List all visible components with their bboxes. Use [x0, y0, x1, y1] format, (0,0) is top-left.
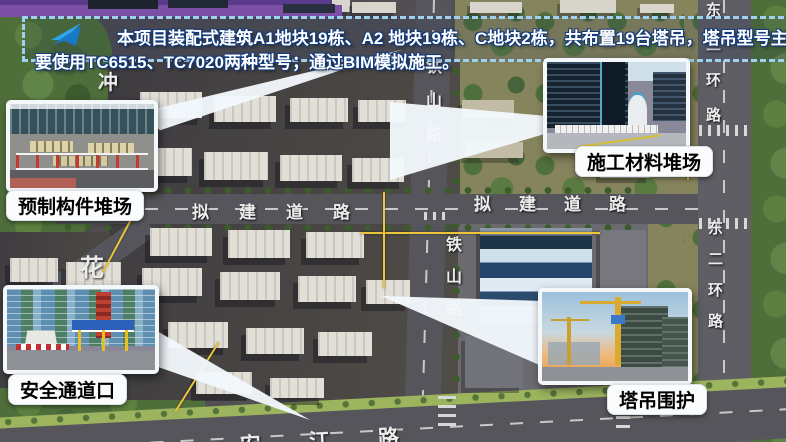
- inset-safety-gate: [3, 285, 159, 374]
- building: [228, 230, 290, 258]
- crane-ground: [542, 367, 688, 381]
- dark-block: [88, 0, 158, 9]
- crane-line: [383, 192, 385, 288]
- road-label-proposed-right: 拟建道路: [474, 190, 654, 215]
- safety-canopy-post: [125, 330, 128, 351]
- crane-cab: [611, 315, 626, 324]
- crane-building-right2: [662, 317, 688, 370]
- paper-plane-icon: [49, 22, 83, 48]
- slide-aerial-site-plan: 铁山路 铁山路 东二环路 东二环路 拟建道路 拟建道路 安江路 花 冲 本项目装…: [0, 0, 786, 442]
- project-summary-banner: 本项目装配式建筑A1地块19栋、A2 地块19栋、C地块2栋，共布置19台塔吊，…: [22, 16, 786, 62]
- building: [298, 276, 356, 302]
- precast-stack: [30, 141, 73, 152]
- crane-line: [360, 232, 600, 234]
- precast-buildings: [10, 104, 154, 134]
- crane-jib-2: [551, 319, 589, 321]
- dark-block: [168, 0, 228, 8]
- building: [318, 332, 372, 356]
- building: [204, 152, 268, 180]
- inset-material-yard: [543, 58, 690, 153]
- building: [352, 2, 396, 13]
- callout-label-material: 施工材料堆场: [575, 146, 713, 177]
- material-tower: [600, 62, 626, 133]
- building: [290, 98, 348, 122]
- material-building-right: [653, 72, 686, 121]
- road-label-ring-lower: 东二环路: [704, 220, 725, 390]
- dark-block: [283, 4, 335, 13]
- crosswalk-tieshan: [424, 212, 448, 220]
- crane-city-far: [548, 342, 601, 365]
- crane-jib: [580, 301, 641, 304]
- inset-precast-yard: [6, 100, 158, 192]
- crane-building-right: [621, 306, 668, 370]
- safety-tent: [25, 328, 58, 346]
- building: [640, 4, 674, 13]
- crane-mast: [615, 297, 621, 365]
- precast-red-path: [10, 178, 76, 188]
- safety-barrier: [16, 344, 69, 350]
- road-label-proposed-left: 拟建道路: [192, 198, 380, 223]
- safety-canopy-post: [78, 330, 81, 351]
- callout-label-precast: 预制构件堆场: [6, 190, 144, 221]
- building: [470, 2, 522, 13]
- callout-label-safety: 安全通道口: [8, 374, 127, 405]
- building: [280, 155, 342, 181]
- building: [10, 258, 58, 282]
- crane-mast-2: [567, 317, 571, 365]
- precast-fence: [16, 153, 148, 170]
- building: [560, 0, 616, 13]
- safety-ground: [7, 351, 155, 370]
- safety-canopy-post: [102, 330, 105, 351]
- building: [246, 328, 304, 354]
- building: [270, 378, 324, 398]
- building: [220, 272, 280, 300]
- road-label-hua: 花: [80, 248, 104, 283]
- building: [306, 232, 364, 258]
- building: [150, 228, 212, 256]
- inset-crane-fence: [538, 288, 692, 385]
- callout-label-crane: 塔吊围护: [607, 384, 707, 415]
